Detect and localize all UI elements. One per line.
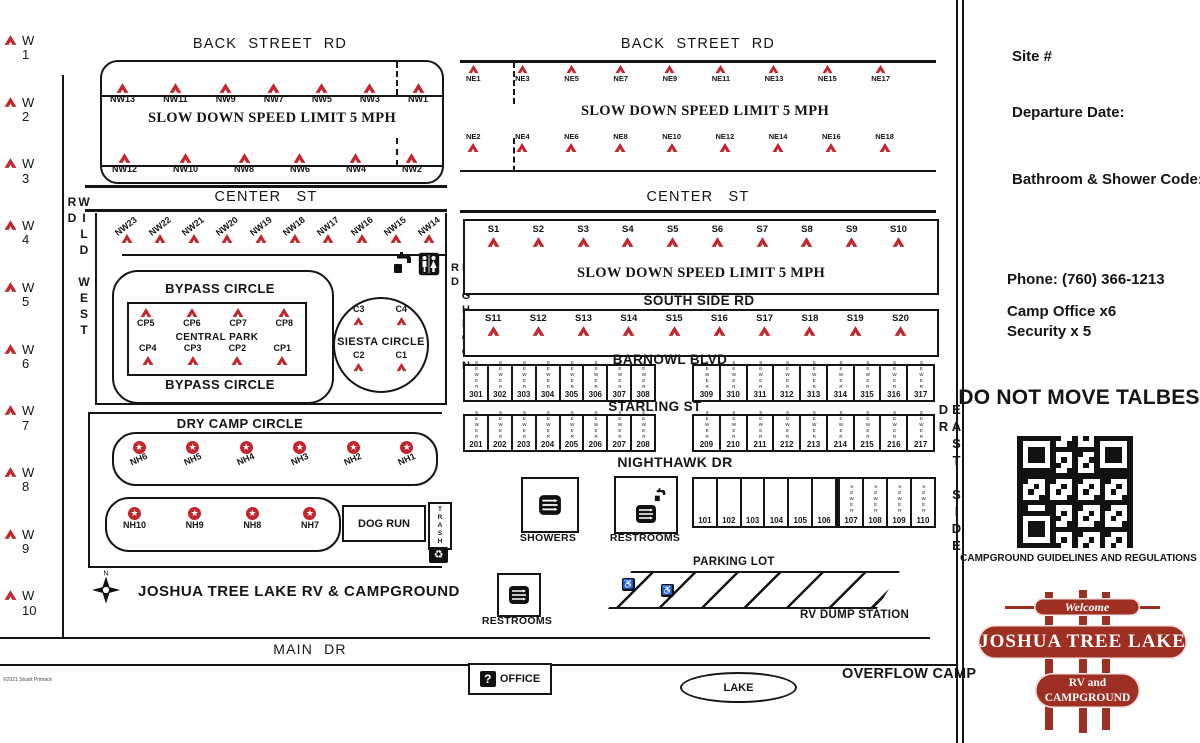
sewer-label: SEWER xyxy=(897,484,902,514)
rv-site-box: SEWER 210 xyxy=(721,414,748,452)
back-street-rd-west-label: BACK STREET RD xyxy=(100,36,440,52)
tent-icon xyxy=(4,589,17,601)
tent-icon xyxy=(713,325,726,337)
campsite: S9 xyxy=(845,225,858,248)
rv-dump-station-label: RV DUMP STATION xyxy=(800,609,909,621)
shower-icon xyxy=(508,585,530,605)
rv-site-box: 104 xyxy=(765,477,789,528)
tent-icon xyxy=(232,307,244,318)
main-dr-label: MAIN DR xyxy=(230,641,390,657)
tent-icon xyxy=(666,142,678,153)
nw-bottom-sites-row: NW12 NW10 NW8 NW6 NW4 NW2 xyxy=(112,152,422,175)
campsite: NE8 xyxy=(613,133,628,153)
siesta-top-sites-row: C3 C4 xyxy=(353,305,407,326)
center-st-west-label: CENTER ST xyxy=(85,189,447,205)
rv-site-box: SEWER 302 xyxy=(489,364,513,402)
speed-limit-east-1: SLOW DOWN SPEED LIMIT 5 MPH xyxy=(540,103,870,120)
sites-309-317-row: SEWER 309 SEWER 310 SEWER 311 SEWER 312 … xyxy=(692,364,935,402)
sewer-label: SEWER xyxy=(921,484,926,514)
tent-icon xyxy=(758,325,771,337)
tent-icon xyxy=(169,82,182,94)
sewer-label: SEWER xyxy=(811,410,816,440)
tent-icon xyxy=(892,236,905,248)
tent-icon xyxy=(116,82,129,94)
campsite: NE7 xyxy=(613,64,628,83)
svg-text:N: N xyxy=(103,568,108,577)
sewer-label: SEWER xyxy=(758,360,763,390)
sewer-label: SEWER xyxy=(811,360,816,390)
tent-icon xyxy=(487,325,500,337)
sewer-label: SEWER xyxy=(838,360,843,390)
sewer-label: SEWER xyxy=(784,410,789,440)
sites-301-308-row: SEWER 301 SEWER 302 SEWER 303 SEWER 304 … xyxy=(463,364,656,402)
sites-209-217-row: SEWER 209 SEWER 210 SEWER 211 SEWER 212 … xyxy=(692,414,935,452)
rv-site-box: 102 xyxy=(718,477,742,528)
campsite: ★ NH5 xyxy=(184,441,202,465)
tent-icon xyxy=(517,64,528,74)
tent-icon xyxy=(772,142,784,153)
center-st-east-label: CENTER ST xyxy=(460,189,936,205)
sewer-label: SEWER xyxy=(498,360,503,390)
tent-icon xyxy=(614,142,626,153)
shower-icon xyxy=(538,494,562,516)
rv-site-box: 101 xyxy=(692,477,718,528)
campsite: NE4 xyxy=(515,133,530,153)
back-street-east-line xyxy=(460,60,936,63)
sites-101-106-row: 101 102 103 104 105 106 xyxy=(692,477,837,528)
tent-icon xyxy=(711,236,724,248)
siesta-circle: C3 C4 SIESTA CIRCLE C2 C1 xyxy=(333,297,429,393)
campsite: C1 xyxy=(395,351,407,372)
campsite: CP5 xyxy=(137,307,155,329)
campsite: NW9 xyxy=(216,82,236,105)
tent-icon xyxy=(353,316,364,326)
sewer-label: SEWER xyxy=(617,410,622,440)
sewer-label: SEWER xyxy=(545,410,550,440)
tent-icon xyxy=(4,404,17,416)
campsite: ★ NH10 xyxy=(123,507,146,531)
rv-site-box: SEWER 307 xyxy=(608,364,632,402)
tent-icon xyxy=(4,343,17,355)
tent-icon xyxy=(668,325,681,337)
campsite: NW12 xyxy=(112,152,137,175)
tent-icon xyxy=(142,355,154,366)
tent-icon xyxy=(715,64,726,74)
main-dr-line-top xyxy=(0,637,930,639)
campsite: CP4 xyxy=(139,344,157,366)
handicap-icon: ♿ xyxy=(622,578,635,591)
camp-office-extension: Camp Office x6 xyxy=(1007,303,1116,320)
rv-site-box: SEWER 214 xyxy=(828,414,855,452)
central-park-rect: CP5 CP6 CP7 CP8 CENTRAL PARK CP4 CP3 CP2 xyxy=(127,302,307,376)
campsite: ★ NH6 xyxy=(130,441,148,465)
sewer-label: SEWER xyxy=(521,360,526,390)
sewer-label: SEWER xyxy=(498,410,503,440)
do-not-move-tables-notice: DO NOT MOVE TALBES xyxy=(958,386,1200,410)
rv-site-box: SEWER 313 xyxy=(801,364,828,402)
lake-label: LAKE xyxy=(724,682,754,694)
dry-camp-site-icon: ★ xyxy=(128,507,141,520)
tent-icon xyxy=(666,236,679,248)
sewer-label: SEWER xyxy=(918,410,923,440)
campsite: W 2 xyxy=(4,96,50,125)
tent-icon xyxy=(118,152,131,164)
rv-site-box: SEWER 312 xyxy=(774,364,801,402)
logo-welcome-plate: Welcome xyxy=(1034,598,1140,616)
tent-icon xyxy=(293,152,306,164)
rv-site-box: 106 xyxy=(813,477,837,528)
campsite: NW3 xyxy=(360,82,380,105)
sewer-label: SEWER xyxy=(641,410,646,440)
restrooms-south-label: RESTROOMS xyxy=(477,615,557,627)
tent-icon xyxy=(363,82,376,94)
tent-icon xyxy=(577,325,590,337)
bypass-circle-top-label: BYPASS CIRCLE xyxy=(130,281,310,296)
campsite: CP3 xyxy=(184,344,202,366)
campsite: NW13 xyxy=(110,82,135,105)
sewer-label: SEWER xyxy=(731,410,736,440)
campsite: ★ NH4 xyxy=(237,441,255,465)
tent-icon xyxy=(664,64,675,74)
campsite: W 3 xyxy=(4,157,50,186)
wild-west-rd-label: WILD WEST RD xyxy=(66,195,90,355)
water-faucet-icon xyxy=(392,250,416,281)
sewer-label: SEWER xyxy=(892,410,897,440)
campsite: W 10 xyxy=(4,589,50,618)
copyright-text: ©2021 Stuart Primack xyxy=(3,677,52,683)
campground-logo: Welcome JOSHUA TREE LAKE RV and CAMPGROU… xyxy=(975,590,1193,740)
campsite: S4 xyxy=(621,225,634,248)
rv-site-box: SEWER 309 xyxy=(692,364,721,402)
rv-site-box: SEWER 308 xyxy=(632,364,656,402)
campsite: NE2 xyxy=(466,133,481,153)
rv-site-box: SEWER 216 xyxy=(881,414,908,452)
tent-icon xyxy=(822,64,833,74)
rv-site-box: SEWER 204 xyxy=(537,414,561,452)
campsite: S20 xyxy=(892,314,909,337)
tent-icon xyxy=(516,142,528,153)
sewer-label: SEWER xyxy=(569,410,574,440)
west-sites-column: W 1 W 2 W 3 W 4 W 5 W 6 W 7 W 8 W 9 W xyxy=(4,34,50,618)
tent-icon xyxy=(719,142,731,153)
restrooms-mid-box xyxy=(614,476,678,534)
rv-site-box: SEWER 316 xyxy=(881,364,908,402)
sewer-label: SEWER xyxy=(892,360,897,390)
tent-icon xyxy=(532,325,545,337)
campsite: W 7 xyxy=(4,404,50,433)
nh-loop-bottom: ★ NH10 ★ NH9 ★ NH8 ★ NH7 xyxy=(105,497,341,552)
ne-bottom-line xyxy=(460,170,936,172)
rv-site-box: SEWER 213 xyxy=(801,414,828,452)
tent-icon xyxy=(487,236,500,248)
logo-rv-text: RV and xyxy=(1069,676,1106,690)
rv-site-box: SEWER 215 xyxy=(855,414,882,452)
campsite: ★ NH9 xyxy=(186,507,204,531)
recycle-icon: ♻ xyxy=(429,547,448,563)
rv-site-box: SEWER 305 xyxy=(561,364,585,402)
tent-icon xyxy=(621,236,634,248)
sewer-label: SEWER xyxy=(704,410,709,440)
tent-icon xyxy=(276,355,288,366)
ne-odd-sites-row: NE1 NE3 NE5 NE7 NE9 NE11 NE13 NE15 NE17 xyxy=(466,64,890,83)
speed-limit-west: SLOW DOWN SPEED LIMIT 5 MPH xyxy=(102,110,442,127)
rv-site-box: SEWER 202 xyxy=(489,414,513,452)
campsite: CP8 xyxy=(275,307,293,329)
sites-201-208-row: SEWER 201 SEWER 202 SEWER 203 SEWER 204 … xyxy=(463,414,656,452)
departure-date-label: Departure Date: xyxy=(1012,104,1125,121)
campsite: NE13 xyxy=(765,64,784,83)
campsite: NW2 xyxy=(402,152,422,175)
tent-icon xyxy=(532,236,545,248)
campsite: W 6 xyxy=(4,343,50,372)
security-extension: Security x 5 xyxy=(1007,323,1091,340)
sewer-label: SEWER xyxy=(474,410,479,440)
rv-site-box: SEWER 317 xyxy=(908,364,935,402)
sewer-label: SEWER xyxy=(865,360,870,390)
campsite: NE5 xyxy=(564,64,579,83)
dog-run-box: DOG RUN xyxy=(342,505,426,542)
tent-icon xyxy=(219,82,232,94)
tent-icon xyxy=(768,64,779,74)
lake-ellipse: LAKE xyxy=(680,672,797,703)
parking-lot-stripes xyxy=(608,571,900,609)
campsite: NE14 xyxy=(769,133,788,153)
campsite: CP6 xyxy=(183,307,201,329)
campsite: C2 xyxy=(353,351,365,372)
center-st-west-line-top xyxy=(85,185,447,188)
tent-icon xyxy=(467,142,479,153)
rv-site-box: SEWER 109 xyxy=(888,477,912,528)
sewer-label: SEWER xyxy=(758,410,763,440)
campsite: W 4 xyxy=(4,219,50,248)
site-number-label: Site # xyxy=(1012,48,1052,65)
campsite: C4 xyxy=(395,305,407,326)
tent-icon xyxy=(186,307,198,318)
siesta-bottom-sites-row: C2 C1 xyxy=(353,351,407,372)
showers-label: SHOWERS xyxy=(503,532,593,544)
campsite: NW1 xyxy=(408,82,428,105)
tent-icon xyxy=(566,64,577,74)
campsite: NE16 xyxy=(822,133,841,153)
rv-site-box: SEWER 311 xyxy=(748,364,775,402)
sewer-label: SEWER xyxy=(617,360,622,390)
rv-site-box: SEWER 315 xyxy=(855,364,882,402)
showers-box xyxy=(521,477,579,533)
sites-107-110-row: SEWER 107 SEWER 108 SEWER 109 SEWER 110 xyxy=(837,477,936,528)
restrooms-mid-label: RESTROOMS xyxy=(604,532,686,544)
tent-icon xyxy=(349,152,362,164)
campsite: S5 xyxy=(666,225,679,248)
tent-icon xyxy=(4,157,17,169)
tent-icon xyxy=(4,281,17,293)
tent-icon xyxy=(468,64,479,74)
campsite: S19 xyxy=(847,314,864,337)
tent-icon xyxy=(179,152,192,164)
sewer-label: SEWER xyxy=(704,360,709,390)
campsite: CP2 xyxy=(229,344,247,366)
campsite: CP7 xyxy=(229,307,247,329)
campsite: W 5 xyxy=(4,281,50,310)
campsite: S7 xyxy=(756,225,769,248)
rv-site-box: SEWER 303 xyxy=(513,364,537,402)
cp-top-sites-row: CP5 CP6 CP7 CP8 xyxy=(137,307,293,329)
campsite: NW8 xyxy=(234,152,254,175)
campsite: W 8 xyxy=(4,466,50,495)
tent-icon xyxy=(800,236,813,248)
tent-icon xyxy=(396,316,407,326)
ne-even-sites-row: NE2 NE4 NE6 NE8 NE10 NE12 NE14 NE16 NE18 xyxy=(466,133,894,153)
handicap-icon: ♿ xyxy=(661,584,674,597)
cp-bottom-sites-row: CP4 CP3 CP2 CP1 xyxy=(139,344,291,366)
logo-lower-banner: RV and CAMPGROUND xyxy=(1035,673,1140,708)
campsite: ★ NH8 xyxy=(243,507,261,531)
campsite: NE18 xyxy=(875,133,894,153)
campsite: NE9 xyxy=(663,64,678,83)
sewer-label: SEWER xyxy=(521,410,526,440)
tent-icon xyxy=(622,325,635,337)
tent-icon xyxy=(140,307,152,318)
nh-loop-top: ★ NH6 ★ NH5 ★ NH4 ★ NH3 ★ NH2 ★ NH1 xyxy=(112,432,438,486)
campsite: S16 xyxy=(711,314,728,337)
campsite: NE17 xyxy=(871,64,890,83)
nw-block: NW13 NW11 NW9 NW7 NW5 NW3 NW1 SLOW DOWN … xyxy=(100,60,444,184)
dry-camp-site-icon: ★ xyxy=(246,507,259,520)
sewer-label: SEWER xyxy=(918,360,923,390)
dry-camp-site-icon: ★ xyxy=(188,507,201,520)
sewer-label: SEWER xyxy=(865,410,870,440)
nh-top-sites-row: ★ NH6 ★ NH5 ★ NH4 ★ NH3 ★ NH2 ★ NH1 xyxy=(130,441,416,465)
logo-welcome-text: Welcome xyxy=(1065,600,1109,615)
rv-site-box: SEWER 201 xyxy=(463,414,489,452)
dry-camp-circle-label: DRY CAMP CIRCLE xyxy=(150,416,330,431)
qr-code xyxy=(1017,436,1133,548)
tent-icon xyxy=(315,82,328,94)
tent-icon xyxy=(238,152,251,164)
rv-site-box: 105 xyxy=(789,477,813,528)
bypass-circle-bottom-label: BYPASS CIRCLE xyxy=(130,377,310,392)
rv-site-box: SEWER 208 xyxy=(632,414,656,452)
tent-icon xyxy=(278,307,290,318)
campsite: S12 xyxy=(530,314,547,337)
tent-icon xyxy=(187,355,199,366)
s-row-1: S1 S2 S3 S4 S5 S6 S7 S8 xyxy=(487,225,907,248)
campsite: S15 xyxy=(666,314,683,337)
tent-icon xyxy=(4,34,17,46)
campsite: W 9 xyxy=(4,528,50,557)
sewer-label: SEWER xyxy=(593,410,598,440)
campsite: S18 xyxy=(801,314,818,337)
back-street-rd-east-label: BACK STREET RD xyxy=(460,36,936,52)
campsite: ★ NH3 xyxy=(291,441,309,465)
campsite: NE3 xyxy=(515,64,530,83)
rv-site-box: SEWER 304 xyxy=(537,364,561,402)
rv-site-box: SEWER 212 xyxy=(774,414,801,452)
sewer-label: SEWER xyxy=(641,360,646,390)
trash-box: TRASH xyxy=(428,502,452,550)
qr-caption: CAMPGROUND GUIDELINES AND REGULATIONS xyxy=(957,553,1200,564)
tent-icon xyxy=(825,142,837,153)
tent-icon xyxy=(845,236,858,248)
sewer-label: SEWER xyxy=(838,410,843,440)
campsite: S11 xyxy=(485,314,501,337)
s-row-2: S11 S12 S13 S14 S15 S16 S17 S18 xyxy=(485,314,909,337)
campsite: NE6 xyxy=(564,133,579,153)
campsite: NW11 xyxy=(163,82,188,105)
tent-icon xyxy=(4,219,17,231)
trash-label: TRASH xyxy=(437,506,444,546)
campsite: S8 xyxy=(800,225,813,248)
bathroom-shower-code-label: Bathroom & Shower Code: xyxy=(1012,171,1200,188)
sewer-label: SEWER xyxy=(569,360,574,390)
shower-icon xyxy=(635,504,657,524)
campsite: ★ NH1 xyxy=(398,441,416,465)
campsite: NE1 xyxy=(466,64,481,83)
campsite: S14 xyxy=(620,314,637,337)
rv-site-box: 103 xyxy=(742,477,766,528)
campsite: S2 xyxy=(532,225,545,248)
sidebar-divider xyxy=(956,0,964,743)
rv-site-box: SEWER 207 xyxy=(608,414,632,452)
sewer-label: SEWER xyxy=(731,360,736,390)
sewer-label: SEWER xyxy=(849,484,854,514)
siesta-circle-label: SIESTA CIRCLE xyxy=(329,336,433,348)
center-st-east-line xyxy=(460,210,936,213)
campsite: NW10 xyxy=(173,152,198,175)
tent-icon xyxy=(353,362,364,372)
campsite: NE10 xyxy=(662,133,681,153)
sewer-label: SEWER xyxy=(545,360,550,390)
logo-main-banner: JOSHUA TREE LAKE xyxy=(978,625,1187,659)
rv-site-box: SEWER 205 xyxy=(561,414,585,452)
water-faucet-icon xyxy=(652,487,670,503)
campsite: NW4 xyxy=(346,152,366,175)
campsite: W 1 xyxy=(4,34,50,63)
restrooms-south-box xyxy=(497,573,541,617)
tent-icon xyxy=(396,362,407,372)
rv-site-box: SEWER 108 xyxy=(864,477,888,528)
campsite: S1 xyxy=(487,225,500,248)
sewer-label: SEWER xyxy=(593,360,598,390)
rv-site-box: SEWER 206 xyxy=(584,414,608,452)
campsite: C3 xyxy=(353,305,365,326)
rv-site-box: SEWER 301 xyxy=(463,364,489,402)
tent-icon xyxy=(4,528,17,540)
nw-top-sites-row: NW13 NW11 NW9 NW7 NW5 NW3 NW1 xyxy=(110,82,428,105)
sewer-label: SEWER xyxy=(784,360,789,390)
rv-site-box: SEWER 110 xyxy=(912,477,936,528)
tent-icon xyxy=(4,466,17,478)
campsite: NE12 xyxy=(715,133,734,153)
compass-rose-icon: N xyxy=(88,568,124,617)
office-box: ? OFFICE xyxy=(468,663,552,695)
dry-camp-site-icon: ★ xyxy=(303,507,316,520)
logo-campground-text: CAMPGROUND xyxy=(1045,691,1131,705)
tent-icon xyxy=(565,142,577,153)
speed-limit-east-2: SLOW DOWN SPEED LIMIT 5 MPH xyxy=(465,265,937,282)
nh-bottom-sites-row: ★ NH10 ★ NH9 ★ NH8 ★ NH7 xyxy=(123,507,319,531)
tent-icon xyxy=(803,325,816,337)
campsite: NE15 xyxy=(818,64,837,83)
phone-number: Phone: (760) 366-1213 xyxy=(1007,271,1165,288)
office-label: OFFICE xyxy=(500,673,540,685)
tent-icon xyxy=(894,325,907,337)
tent-icon xyxy=(231,355,243,366)
s-block-2: S11 S12 S13 S14 S15 S16 S17 S18 xyxy=(463,309,939,357)
rv-site-box: SEWER 211 xyxy=(748,414,775,452)
campsite: S17 xyxy=(756,314,773,337)
campsite: S6 xyxy=(711,225,724,248)
logo-title-text: JOSHUA TREE LAKE xyxy=(979,631,1186,653)
